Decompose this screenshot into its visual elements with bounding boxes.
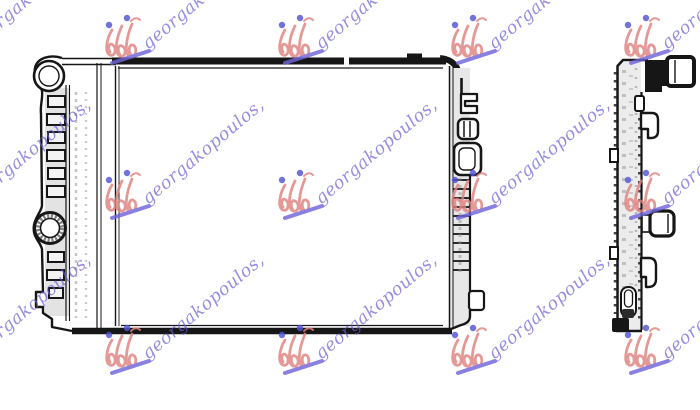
drawing-layer (34, 54, 694, 333)
watermark-logo-icon (626, 30, 634, 55)
watermark-text: georgakopoulos, (484, 250, 614, 364)
watermark-dot-icon (124, 325, 130, 331)
watermark-logo-icon (304, 18, 313, 21)
watermark-logo-icon (650, 328, 659, 331)
watermark-text: georgakopoulos, (138, 0, 268, 54)
watermark-logo-icon (289, 336, 298, 366)
watermark: georgakopoulos, (106, 0, 269, 63)
watermark-logo-icon (289, 26, 298, 56)
watermark-logo-icon (635, 336, 644, 366)
watermark-logo-icon (477, 328, 486, 331)
watermark-logo-icon (453, 30, 461, 55)
watermark-logo-icon (645, 179, 654, 212)
bottom-foot (612, 318, 629, 332)
side-tab-left-1 (610, 149, 618, 162)
watermark-dot-icon (452, 177, 458, 183)
watermark-dot-icon (106, 22, 112, 28)
top-pipe-elbow (645, 57, 694, 92)
watermark-dot-icon (279, 332, 285, 338)
watermark-logo-icon (299, 24, 308, 57)
watermark-text: georgakopoulos, (0, 0, 95, 54)
watermark-logo-icon (477, 18, 486, 21)
watermark-dot-icon (124, 170, 130, 176)
watermark-dot-icon (124, 15, 130, 21)
watermark-dot-icon (279, 177, 285, 183)
watermark-text: georgakopoulos, (657, 0, 700, 54)
watermark-logo-icon (453, 340, 461, 365)
watermark-logo-icon (107, 340, 115, 365)
pipe-flange (667, 57, 694, 86)
drain-slot (621, 287, 636, 318)
watermark-text: georgakopoulos, (657, 250, 700, 364)
hook-upper (641, 113, 658, 138)
radiator-technical-drawing: georgakopoulos,georgakopoulos,georgakopo… (0, 0, 700, 410)
watermark-dot-icon (452, 22, 458, 28)
watermark-logo-icon (462, 336, 471, 366)
watermark-logo-icon (116, 26, 125, 56)
watermark-logo-icon (126, 334, 135, 367)
watermark-logo-icon (126, 24, 135, 57)
side-rib (635, 96, 644, 111)
watermark-dot-icon (625, 332, 631, 338)
mount-boss (458, 119, 478, 139)
watermark-dot-icon (297, 170, 303, 176)
watermark-text: georgakopoulos, (657, 95, 700, 209)
watermark-logo-icon (107, 30, 115, 55)
watermark-logo-icon (280, 340, 288, 365)
watermark: georgakopoulos, (0, 0, 95, 63)
watermark-logo-icon (645, 24, 654, 57)
hook-lower (641, 258, 656, 287)
watermark-dot-icon (625, 177, 631, 183)
watermark: georgakopoulos, (452, 250, 615, 373)
watermark-dot-icon (643, 15, 649, 21)
watermark-dot-icon (106, 177, 112, 183)
watermark-dot-icon (297, 325, 303, 331)
mount-bracket-lower (469, 291, 484, 310)
watermark-logo-icon (280, 30, 288, 55)
watermark-dot-icon (643, 325, 649, 331)
inlet-port-top (34, 61, 64, 91)
watermark-text: georgakopoulos, (484, 95, 614, 209)
watermark-dot-icon (625, 22, 631, 28)
watermark-logo-icon (635, 26, 644, 56)
watermark-logo-icon (626, 340, 634, 365)
watermark-logo-icon (645, 334, 654, 367)
watermark-logo-icon (472, 24, 481, 57)
watermark: georgakopoulos, (452, 0, 615, 63)
radiator-front-view (34, 54, 484, 332)
watermark-logo-icon (131, 18, 140, 21)
watermark-text: georgakopoulos, (484, 0, 614, 54)
mount-tab-large (454, 143, 481, 175)
watermark-dot-icon (279, 22, 285, 28)
watermark-dot-icon (470, 325, 476, 331)
watermark-dot-icon (643, 170, 649, 176)
side-tab-left-2 (610, 247, 618, 259)
watermark-logo-icon (472, 334, 481, 367)
watermark-dot-icon (470, 170, 476, 176)
watermark-dot-icon (297, 15, 303, 21)
watermark-logo-icon (650, 18, 659, 21)
watermark-dot-icon (106, 332, 112, 338)
watermark-dot-icon (452, 332, 458, 338)
watermark-dot-icon (470, 15, 476, 21)
watermark-logo-icon (472, 179, 481, 212)
watermark: georgakopoulos, (625, 0, 700, 63)
right-tank (450, 66, 485, 329)
watermark-logo-icon (650, 173, 659, 176)
watermark-logo-icon (116, 336, 125, 366)
outlet-port-middle (35, 213, 66, 244)
watermark-logo-icon (299, 334, 308, 367)
watermark-logo-icon (462, 26, 471, 56)
watermark-logo-icon (477, 173, 486, 176)
watermark-text: georgakopoulos, (311, 0, 441, 54)
